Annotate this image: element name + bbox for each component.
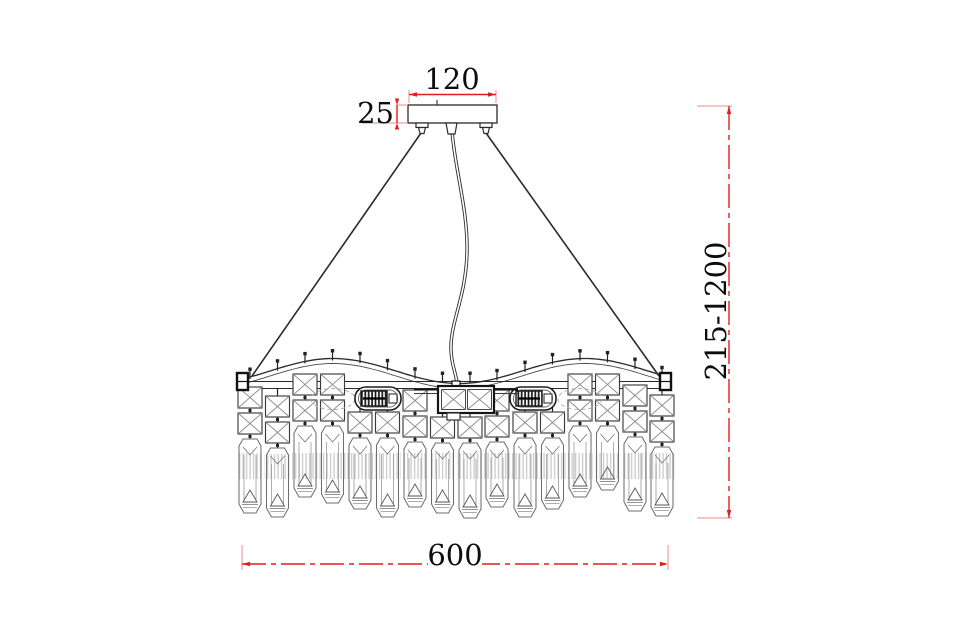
dim-label-fixture-width: 600 (427, 538, 482, 572)
dim-height-range: 215-1200 (697, 106, 733, 518)
dim-label-canopy-width: 120 (424, 62, 479, 96)
center-box-crystal-right (468, 390, 492, 410)
dim-label-canopy-height: 25 (357, 96, 394, 130)
dim-canopy-height: 25 (357, 96, 408, 130)
canopy-mount-nut-right (480, 123, 492, 134)
crystal-column (320, 374, 346, 503)
crystal-column (622, 385, 648, 511)
dim-label-height-range: 215-1200 (699, 242, 733, 381)
suspension (252, 131, 659, 384)
crystal-column (237, 387, 263, 513)
crystal-column (567, 374, 593, 497)
chandelier-dimension-drawing: 120 25 215-1200 600 (0, 0, 975, 622)
crystal-column (265, 388, 291, 517)
power-cord-highlight (451, 131, 467, 384)
crystal-column (649, 388, 675, 516)
center-box-tab (447, 413, 460, 420)
canopy-mount-nut-left (416, 123, 428, 134)
crystal-column (292, 374, 318, 497)
center-box-crystal-left (442, 390, 466, 410)
crystal-column (402, 388, 428, 507)
canopy-cord-gland (446, 123, 457, 134)
suspension-wire-left (252, 133, 421, 376)
frame-end-cap-left (237, 373, 248, 390)
canopy-body (408, 105, 497, 123)
frame-end-cap-right (660, 373, 671, 390)
ceiling-canopy (408, 100, 497, 134)
dim-fixture-width: 600 (242, 538, 668, 572)
power-cord (451, 131, 467, 384)
crystal-column (595, 374, 621, 490)
suspension-wire-right (486, 133, 659, 376)
dim-canopy-width: 120 (409, 62, 496, 103)
lamp-holder-left (355, 387, 401, 410)
technical-drawing-page: 120 25 215-1200 600 (0, 0, 975, 622)
